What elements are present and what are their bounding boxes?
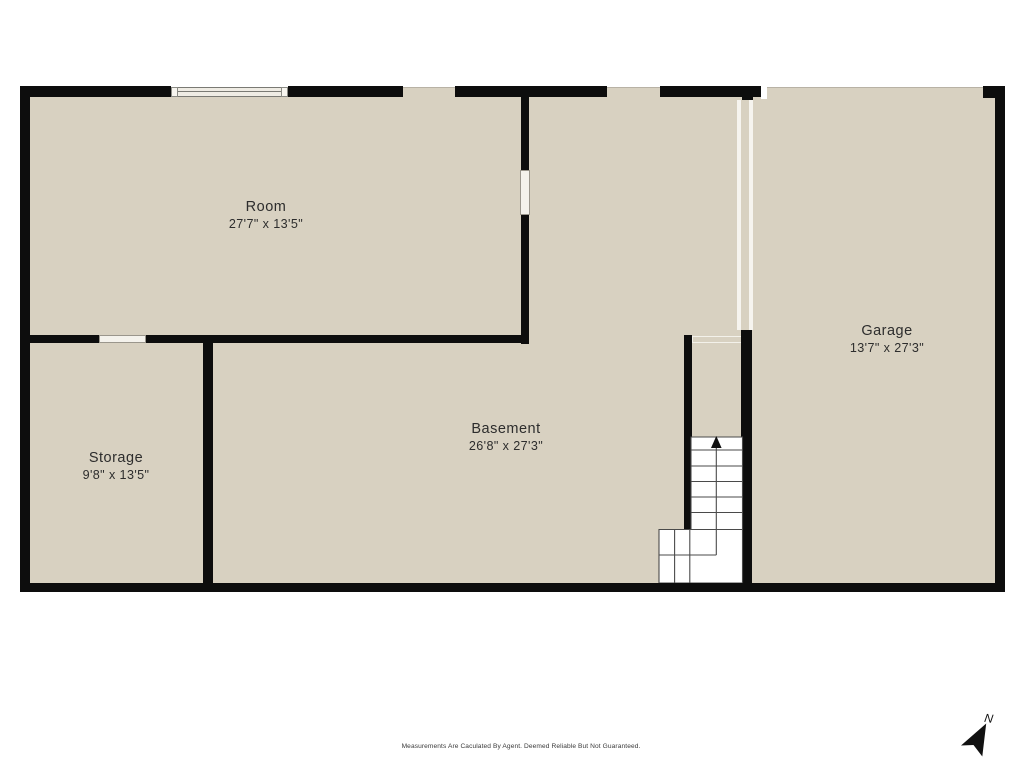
svg-text:N: N [983, 711, 994, 726]
